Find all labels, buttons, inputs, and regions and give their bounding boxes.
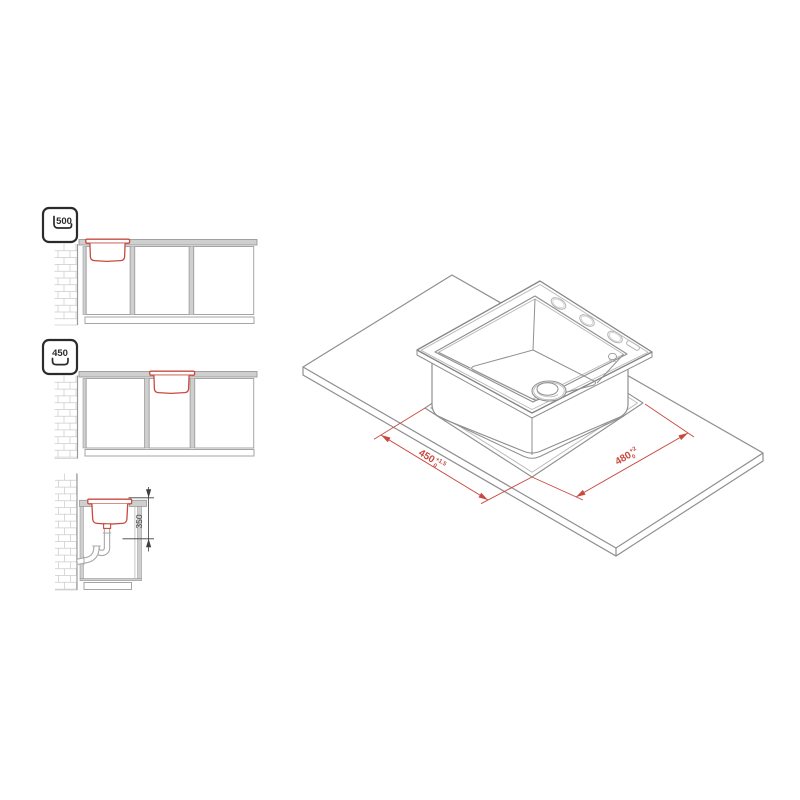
brick-wall — [55, 474, 77, 591]
dimension-350-label: 350 — [134, 514, 144, 528]
front-view-500-cabinet: 500 — [43, 208, 257, 325]
cabinet-divider — [189, 247, 194, 315]
cabinet-box — [195, 379, 254, 449]
cabinet-plinth — [85, 450, 254, 457]
cabinet-bottom — [80, 579, 142, 581]
cabinet-box — [86, 379, 145, 449]
isometric-cutout-view: 450+1.50 480+20 — [303, 275, 763, 556]
cabinet-box — [194, 247, 254, 315]
side-section-view: 350 — [55, 474, 154, 591]
front-view-450-cabinet: 450 — [43, 340, 257, 459]
arrowhead — [146, 489, 151, 498]
cabinet-box — [135, 247, 190, 315]
drain-hole — [532, 381, 566, 401]
brick-wall — [55, 376, 78, 459]
cabinet-divider — [145, 379, 150, 449]
badge-value-450: 450 — [52, 348, 68, 359]
arrowhead — [478, 493, 489, 503]
cabinet-side-panel — [80, 507, 83, 579]
cabinet-divider — [190, 379, 195, 449]
drawing-svg: 500 450 — [0, 0, 800, 800]
arrowhead — [380, 433, 391, 443]
sink-outline-red — [150, 371, 195, 393]
brick-wall — [55, 244, 78, 325]
sink-outline-red — [88, 499, 132, 528]
sink-outline-red — [86, 239, 130, 261]
badge-value-500: 500 — [56, 216, 72, 227]
cabinet-plinth — [84, 583, 132, 590]
drain-stub — [104, 524, 111, 529]
cabinet-plinth — [85, 317, 254, 324]
cabinet-divider — [130, 247, 135, 315]
arrowhead — [146, 539, 151, 548]
sink-installation-drawing: 500 450 — [0, 0, 800, 800]
cutout-width-label: 450+1.50 — [416, 448, 448, 474]
